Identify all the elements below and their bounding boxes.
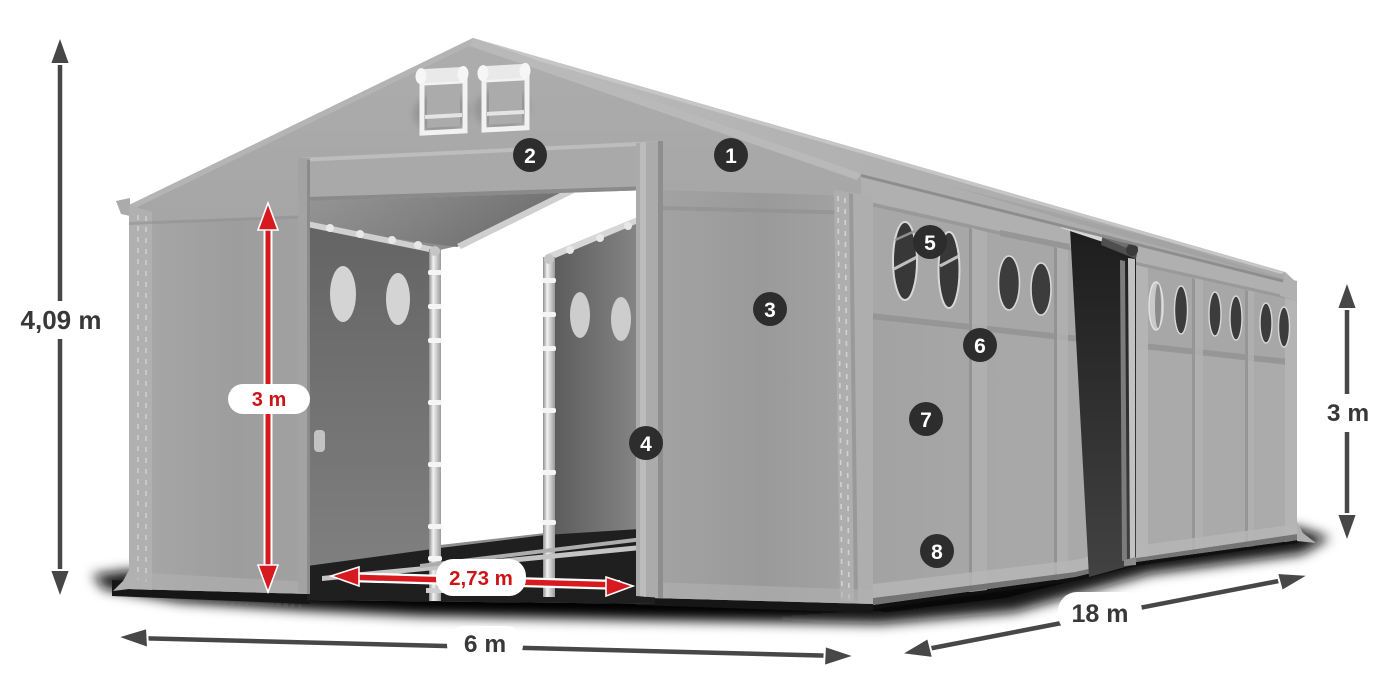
svg-text:6: 6 [974, 335, 986, 358]
svg-text:3 m: 3 m [1327, 400, 1369, 427]
svg-text:4: 4 [640, 433, 652, 456]
svg-text:7: 7 [920, 409, 932, 432]
svg-text:8: 8 [931, 541, 943, 564]
svg-text:5: 5 [924, 232, 936, 255]
svg-text:2: 2 [524, 145, 536, 168]
svg-text:4,09 m: 4,09 m [21, 305, 102, 335]
svg-text:3 m: 3 m [252, 389, 286, 411]
svg-text:2,73 m: 2,73 m [449, 567, 513, 590]
svg-text:1: 1 [725, 145, 737, 168]
svg-text:3: 3 [764, 299, 776, 322]
svg-text:6 m: 6 m [464, 631, 506, 658]
svg-text:18 m: 18 m [1072, 600, 1129, 628]
